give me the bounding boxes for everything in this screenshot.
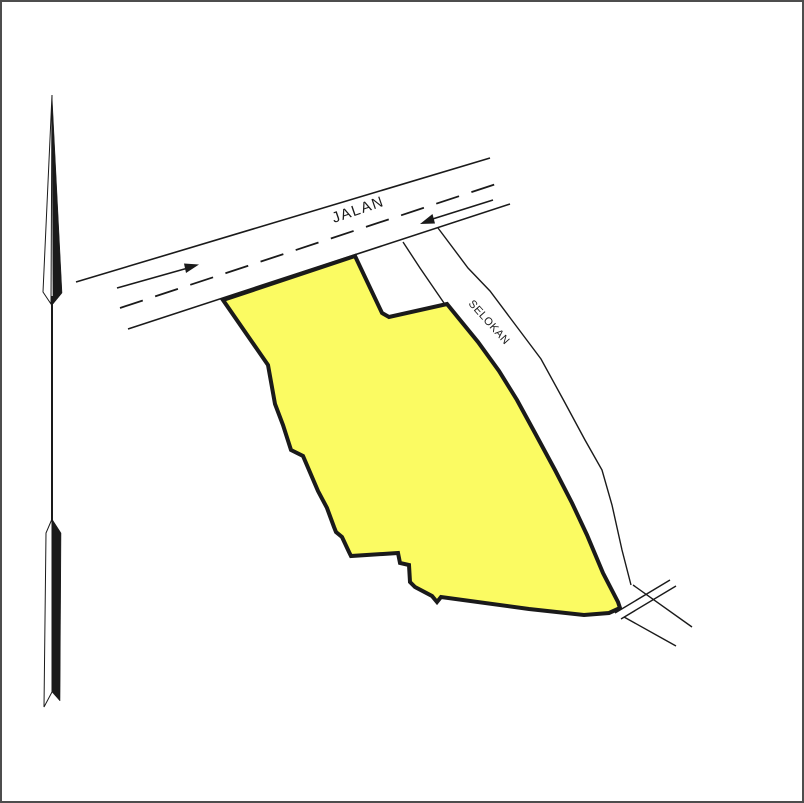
arrow-northeast-tail [117,268,188,288]
site-plan-sheet: JALAN SELOKAN [0,0,804,803]
arrow-northeast-head [184,264,199,274]
parcel-polygon [223,256,620,615]
double-tick-crossing-icon [615,580,676,619]
north-needle-tail-left [44,519,52,707]
arrow-southwest-icon [420,200,493,224]
arrow-northeast-icon [117,264,199,289]
north-needle-tail-right [52,519,61,701]
north-needle-head-left [43,95,52,304]
ditch-left-bank-extension [624,617,676,646]
ditch-left-bank-upper [403,242,444,303]
north-needle-head-right [52,95,62,304]
culvert-tick-2 [621,586,676,619]
culvert-tick-1 [615,580,670,613]
site-plan-canvas: JALAN SELOKAN [0,0,804,803]
north-needle-icon [43,95,62,707]
arrow-southwest-head [420,214,435,224]
